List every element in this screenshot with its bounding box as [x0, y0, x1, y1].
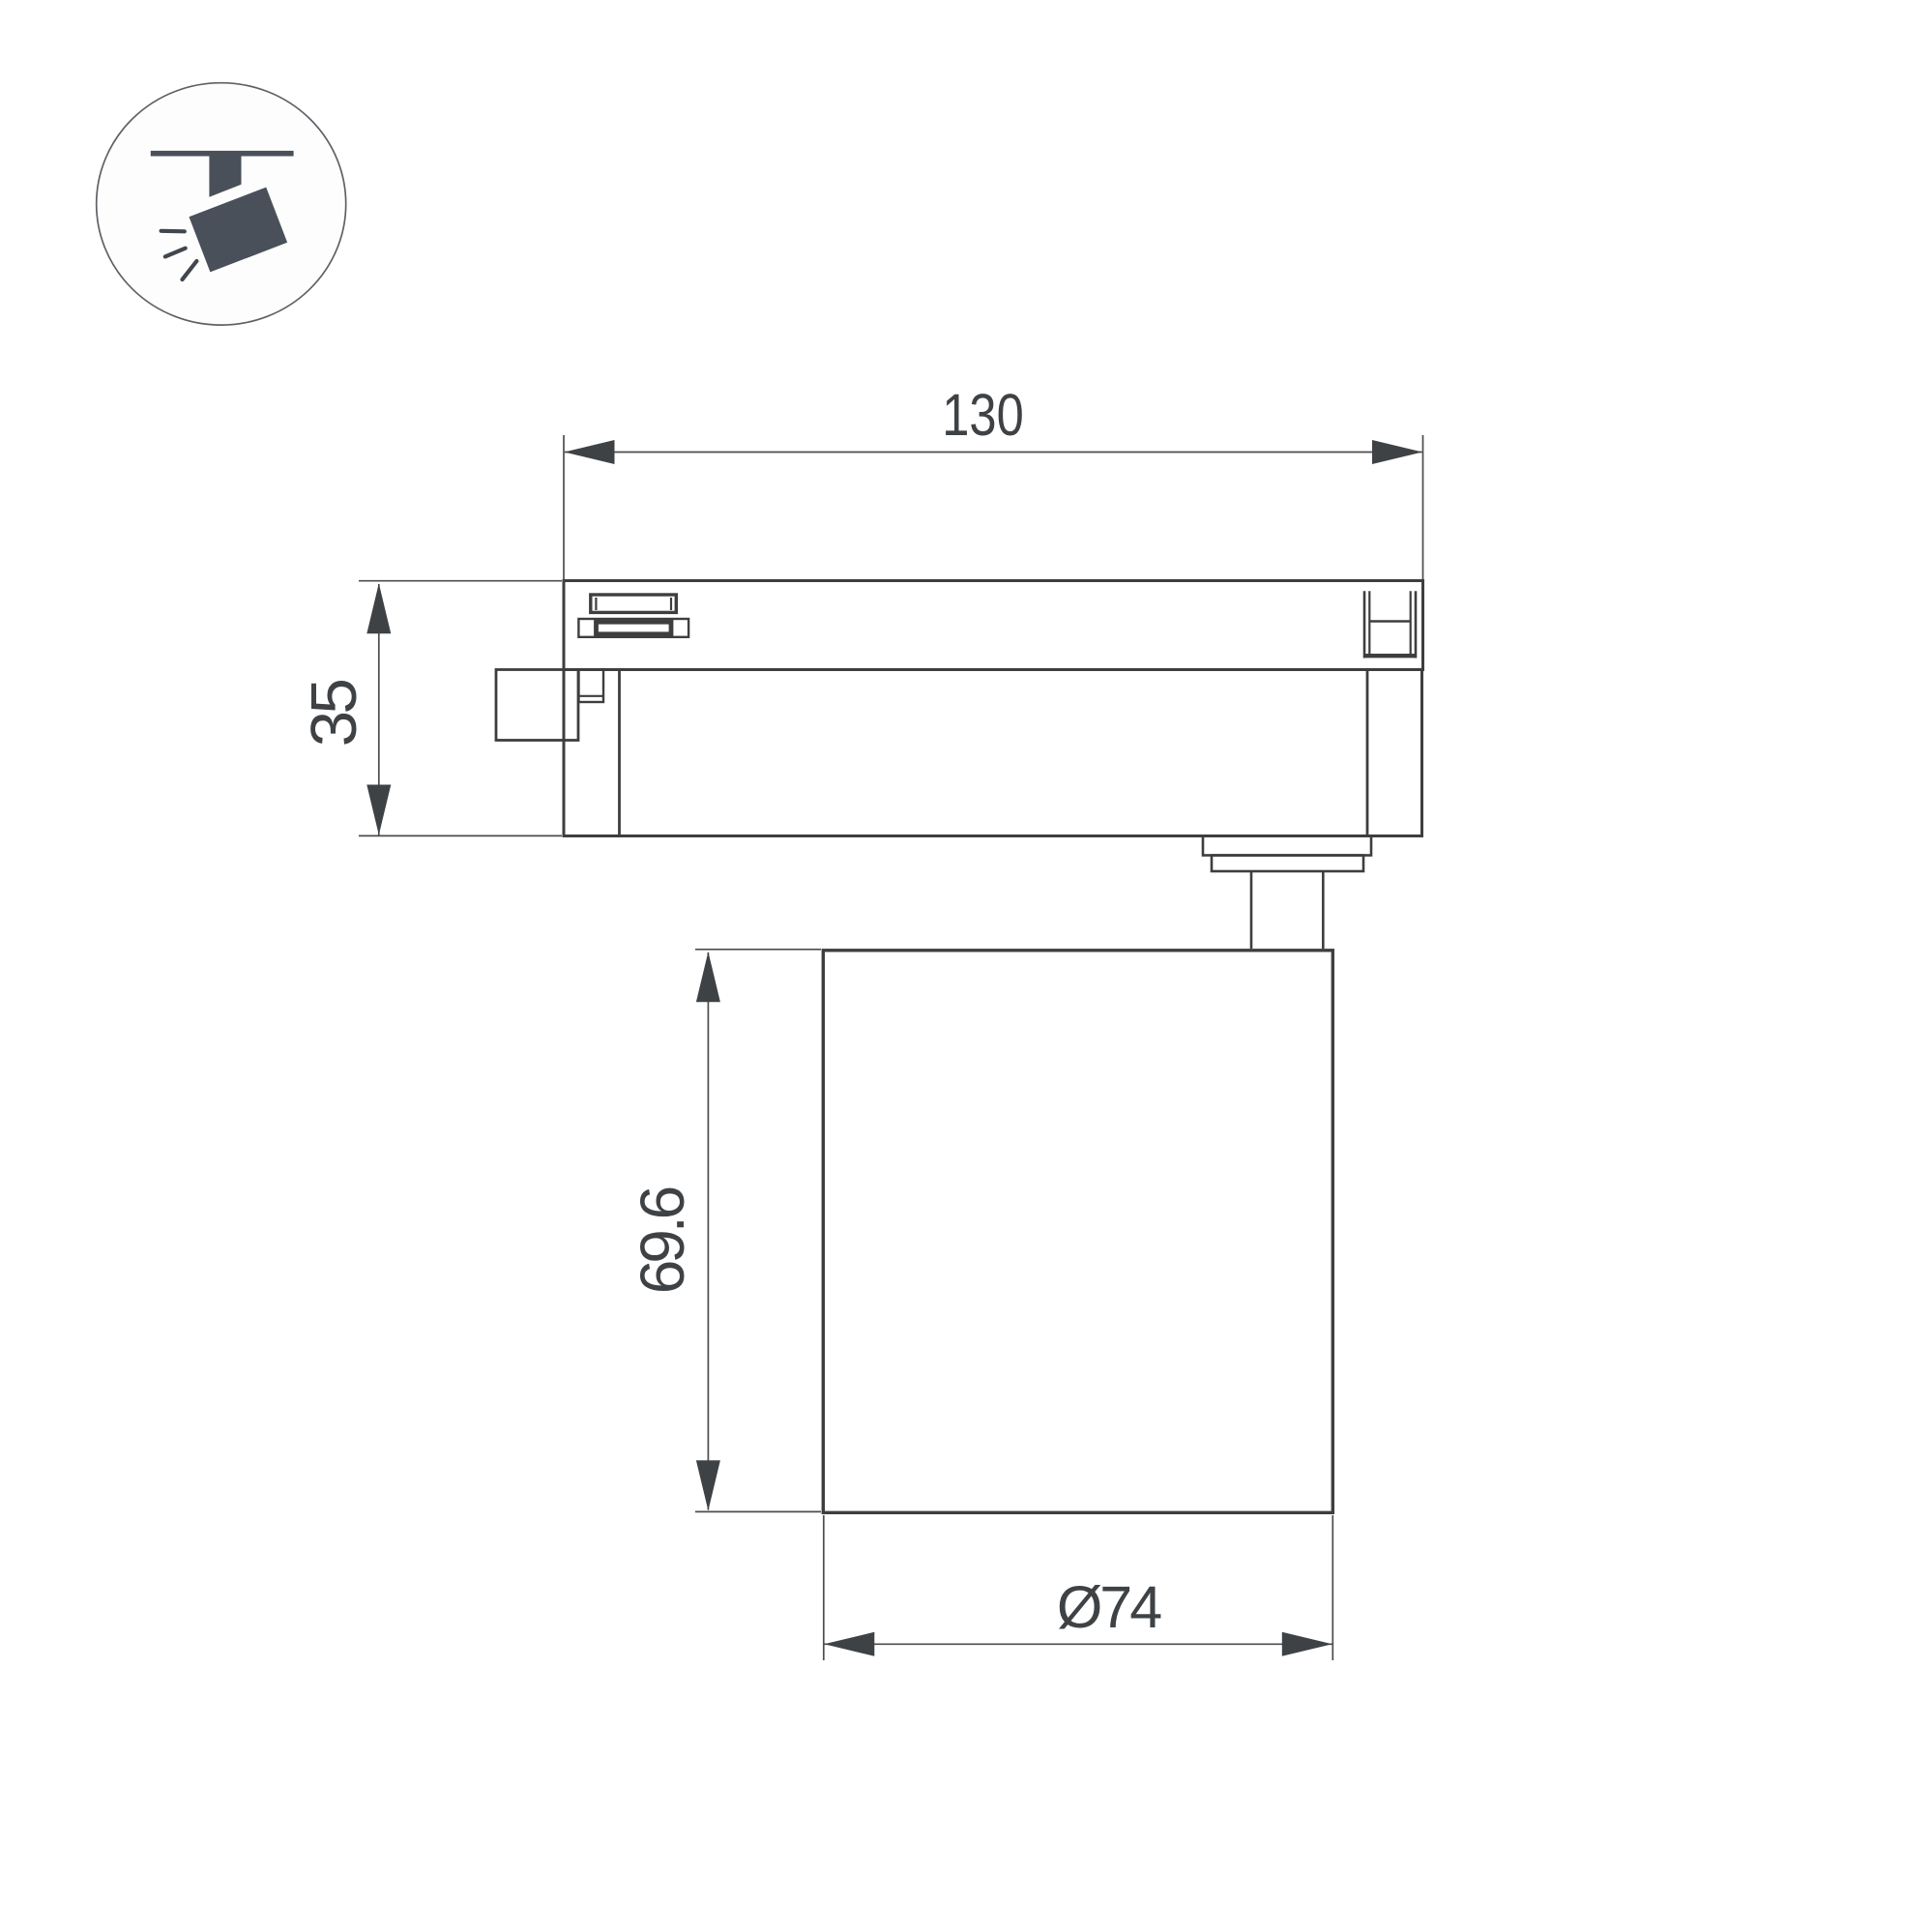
svg-text:Ø74: Ø74 [1057, 1574, 1161, 1640]
svg-text:35: 35 [298, 681, 370, 747]
svg-text:69.6: 69.6 [628, 1187, 697, 1294]
svg-text:130: 130 [942, 382, 1023, 449]
